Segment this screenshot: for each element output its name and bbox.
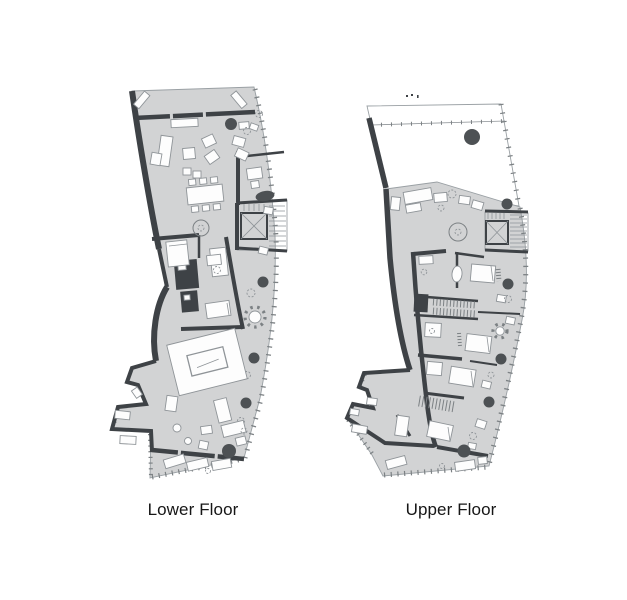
bathtub bbox=[419, 256, 433, 265]
pouf bbox=[173, 424, 181, 432]
armchair bbox=[458, 195, 470, 204]
balcony-chair bbox=[481, 380, 491, 389]
cabinet bbox=[366, 397, 377, 405]
wardrobe bbox=[395, 415, 410, 436]
cabinet bbox=[350, 408, 360, 415]
dimension-marks bbox=[406, 94, 419, 98]
cabinet bbox=[390, 197, 400, 211]
sideboard bbox=[171, 118, 198, 127]
upper-floor-label: Upper Floor bbox=[406, 499, 497, 521]
floor-plans-canvas bbox=[0, 0, 627, 600]
chair bbox=[198, 440, 208, 450]
pouf bbox=[185, 438, 192, 445]
seat bbox=[207, 254, 222, 265]
floor-plan-sheet: Lower Floor Upper Floor bbox=[0, 0, 627, 600]
side-table bbox=[434, 192, 448, 202]
side-table bbox=[183, 168, 191, 175]
side-table bbox=[193, 171, 201, 178]
balcony-chair bbox=[263, 206, 273, 214]
balcony-chair bbox=[505, 316, 515, 325]
bench bbox=[120, 436, 136, 445]
chair bbox=[251, 180, 260, 188]
side-table bbox=[200, 425, 212, 434]
lower-floor-label: Lower Floor bbox=[148, 499, 239, 521]
vanity bbox=[425, 323, 442, 338]
bench bbox=[115, 410, 131, 420]
upper-service-pod bbox=[414, 294, 429, 313]
coffee-table bbox=[183, 147, 196, 159]
side-table bbox=[206, 469, 211, 474]
chair bbox=[165, 395, 178, 411]
desk bbox=[246, 167, 262, 180]
balcony-chair bbox=[258, 246, 268, 255]
chair bbox=[235, 436, 247, 446]
upper-floor-plan bbox=[347, 94, 528, 476]
fixture bbox=[184, 295, 190, 301]
armchair bbox=[150, 152, 162, 166]
lower-bath-pod bbox=[180, 290, 199, 312]
kitchen-unit bbox=[239, 122, 250, 130]
vanity bbox=[426, 361, 442, 375]
lower-floor-plan bbox=[112, 87, 287, 478]
terrace-tree bbox=[464, 129, 480, 145]
balcony-chair bbox=[478, 456, 488, 464]
